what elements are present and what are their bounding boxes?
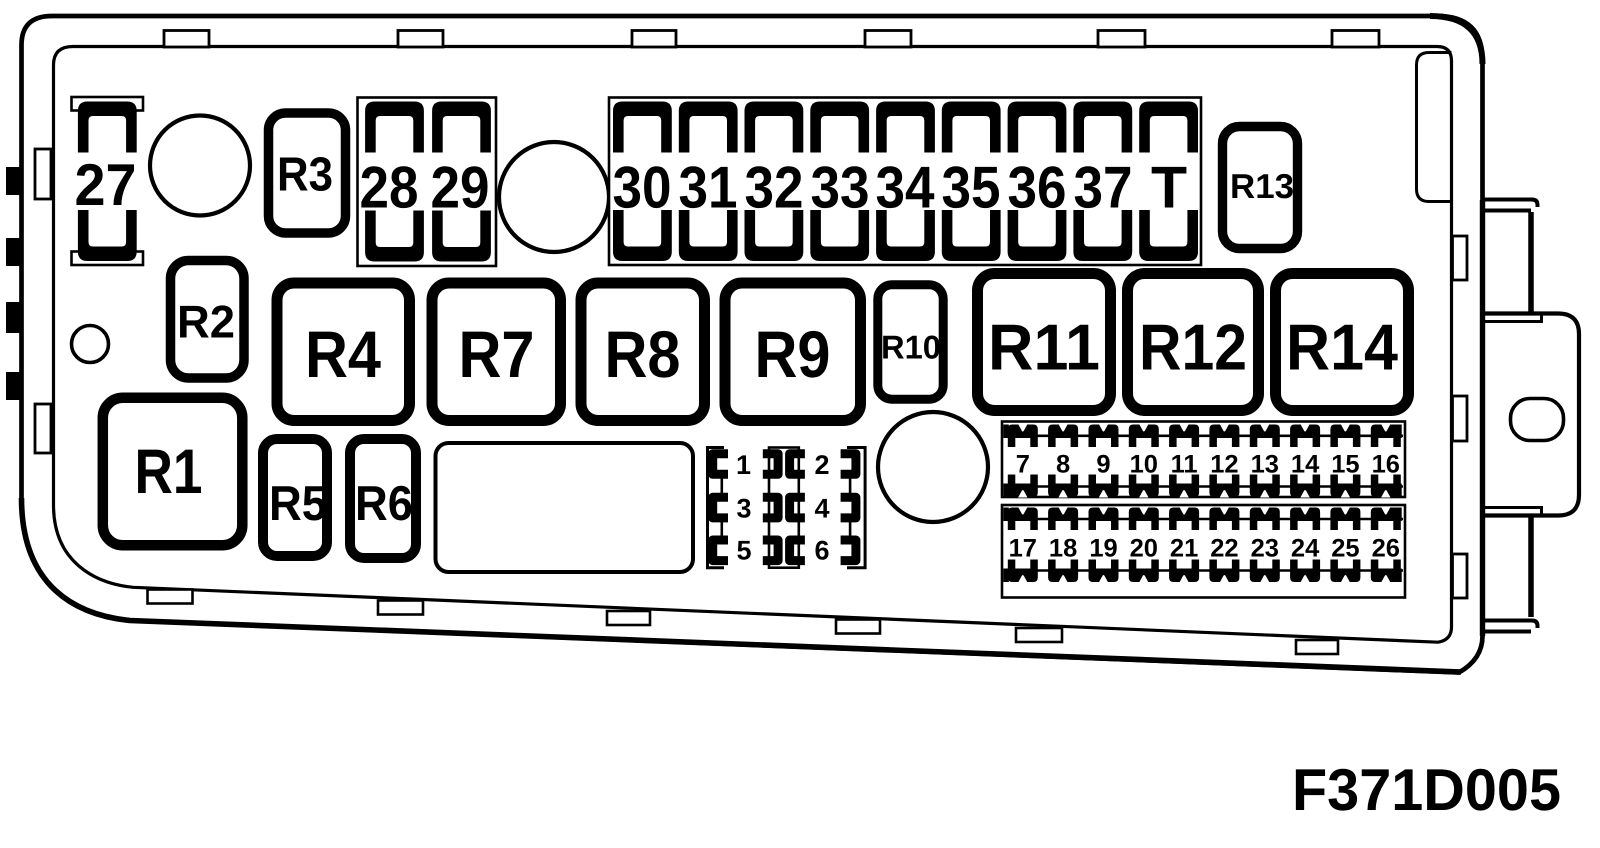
svg-text:24: 24 xyxy=(1291,534,1320,562)
svg-text:R5: R5 xyxy=(269,477,327,531)
svg-text:28: 28 xyxy=(360,154,419,220)
svg-text:25: 25 xyxy=(1331,534,1359,562)
svg-text:8: 8 xyxy=(1056,451,1070,479)
svg-text:R3: R3 xyxy=(277,149,333,202)
svg-text:16: 16 xyxy=(1372,451,1400,479)
svg-text:12: 12 xyxy=(1210,451,1238,479)
svg-text:33: 33 xyxy=(811,154,870,220)
svg-text:R1: R1 xyxy=(135,437,203,507)
svg-text:30: 30 xyxy=(613,154,672,220)
svg-text:3: 3 xyxy=(736,494,751,524)
svg-text:22: 22 xyxy=(1210,534,1238,562)
svg-text:9: 9 xyxy=(1096,451,1110,479)
svg-text:37: 37 xyxy=(1074,154,1133,220)
svg-text:R6: R6 xyxy=(355,477,413,531)
svg-text:23: 23 xyxy=(1251,534,1279,562)
svg-text:R7: R7 xyxy=(459,317,535,391)
svg-text:R9: R9 xyxy=(755,317,831,391)
svg-text:7: 7 xyxy=(1016,451,1030,479)
svg-text:36: 36 xyxy=(1008,154,1067,220)
svg-text:R10: R10 xyxy=(881,329,941,366)
svg-text:R11: R11 xyxy=(988,311,1100,384)
svg-text:R8: R8 xyxy=(605,317,681,391)
svg-text:18: 18 xyxy=(1049,534,1077,562)
svg-text:R14: R14 xyxy=(1286,311,1398,384)
svg-text:26: 26 xyxy=(1372,534,1400,562)
svg-text:19: 19 xyxy=(1089,534,1117,562)
svg-text:34: 34 xyxy=(876,154,935,220)
svg-text:11: 11 xyxy=(1171,451,1198,479)
svg-text:35: 35 xyxy=(942,154,1001,220)
svg-text:1: 1 xyxy=(736,450,751,480)
svg-text:4: 4 xyxy=(814,494,829,524)
svg-text:20: 20 xyxy=(1130,534,1158,562)
svg-text:T: T xyxy=(1151,154,1187,220)
svg-text:21: 21 xyxy=(1170,534,1198,562)
svg-text:R4: R4 xyxy=(305,317,381,391)
svg-text:13: 13 xyxy=(1251,451,1279,479)
svg-text:31: 31 xyxy=(679,154,738,220)
svg-text:5: 5 xyxy=(736,536,751,566)
svg-text:15: 15 xyxy=(1331,451,1359,479)
svg-text:R13: R13 xyxy=(1230,168,1294,206)
svg-text:17: 17 xyxy=(1009,534,1037,562)
svg-text:10: 10 xyxy=(1130,451,1158,479)
svg-text:2: 2 xyxy=(814,450,829,480)
svg-text:6: 6 xyxy=(814,536,829,566)
svg-text:R12: R12 xyxy=(1139,311,1247,384)
svg-text:14: 14 xyxy=(1291,451,1320,479)
svg-text:27: 27 xyxy=(75,152,137,218)
svg-text:29: 29 xyxy=(431,154,490,220)
svg-text:32: 32 xyxy=(745,154,804,220)
svg-text:R2: R2 xyxy=(177,296,235,348)
svg-text:F371D005: F371D005 xyxy=(1292,757,1561,823)
